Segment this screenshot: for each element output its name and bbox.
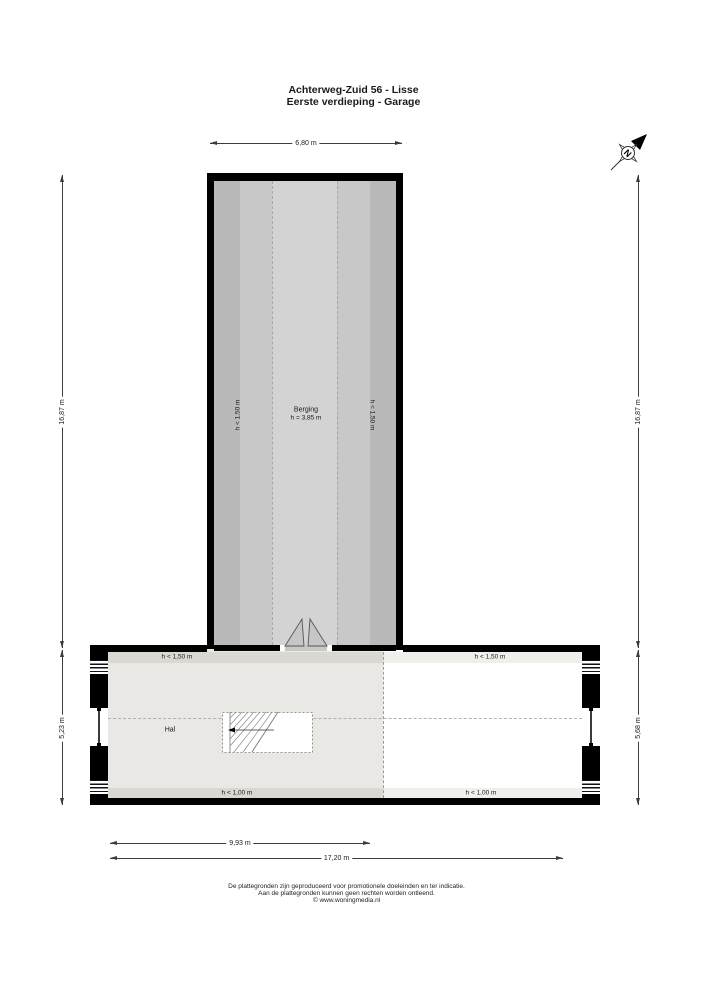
double-door-swing [278, 614, 336, 652]
wall-segment [90, 645, 108, 660]
floor-plan-page: Achterweg-Zuid 56 - Lisse Eerste verdiep… [0, 0, 707, 1000]
wall-segment [582, 645, 600, 660]
right-clearance-top: h < 1,50 m [475, 654, 506, 661]
berging-roofline-dash-left [272, 181, 273, 645]
window [582, 708, 600, 746]
louvre-window [90, 780, 108, 794]
arrow-up-icon [636, 175, 640, 182]
wall-segment [90, 674, 108, 708]
louvre-window [90, 660, 108, 674]
dimension-left-lower: 5,23 m [59, 650, 66, 805]
right-area-floor [383, 652, 582, 798]
arrow-right-icon [395, 141, 402, 145]
dimension-value: 5,23 m [59, 714, 67, 741]
roof-ridge-dash-line [108, 718, 582, 719]
berging-clearance-right: h < 1,50 m [369, 400, 376, 431]
berging-wall-top [207, 173, 403, 181]
arrow-down-icon [636, 798, 640, 805]
window-frame [589, 708, 593, 711]
louvre-window [582, 780, 600, 794]
right-clearance-bottom: h < 1,00 m [466, 790, 497, 797]
dimension-value: 16,87 m [635, 396, 643, 427]
lower-wall-top-right [403, 645, 600, 652]
wall-segment [582, 674, 600, 708]
window-pane [590, 711, 592, 743]
arrow-left-icon [110, 856, 117, 860]
arrow-left-icon [210, 141, 217, 145]
dimension-value: 5,68 m [635, 714, 643, 741]
dimension-right-upper: 16,87 m [635, 175, 642, 648]
arrow-right-icon [556, 856, 563, 860]
page-title: Achterweg-Zuid 56 - Lisse [0, 84, 707, 96]
arrow-down-icon [60, 798, 64, 805]
arrow-down-icon [60, 641, 64, 648]
dimension-value: 9,93 m [226, 840, 253, 848]
wall-segment [90, 746, 108, 780]
dimension-left-upper: 16,87 m [59, 175, 66, 648]
arrow-left-icon [110, 841, 117, 845]
dimension-top-width: 6,80 m [210, 140, 402, 147]
berging-wall-right [396, 173, 403, 650]
left-exterior-wall [90, 645, 108, 805]
berging-clearance-left: h < 1,50 m [235, 400, 242, 431]
disclaimer-line-2: Aan de plattegronden kunnen geen rechten… [0, 890, 693, 897]
berging-ceiling-height: h = 3,85 m [291, 415, 322, 422]
wall-segment [582, 794, 600, 805]
arrow-right-icon [363, 841, 370, 845]
dimension-right-lower: 5,68 m [635, 650, 642, 805]
staircase [222, 712, 313, 753]
hal-room-name: Hal [165, 727, 176, 734]
dimension-value: 6,80 m [292, 140, 319, 148]
window-pane [98, 711, 100, 743]
berging-room-label: Berging h = 3,85 m [291, 407, 322, 422]
hal-low-ceiling-strip-top [108, 652, 383, 663]
page-subtitle: Eerste verdieping - Garage [0, 96, 707, 108]
arrow-up-icon [60, 650, 64, 657]
berging-room-name: Berging [291, 407, 322, 415]
right-exterior-wall [582, 645, 600, 805]
window-frame [97, 708, 101, 711]
lower-wall-bottom [90, 798, 600, 805]
hal-clearance-bottom: h < 1,00 m [222, 790, 253, 797]
arrow-up-icon [60, 175, 64, 182]
room-divider-dash-line [383, 652, 384, 798]
dimension-bottom-total: 17,20 m [110, 855, 563, 862]
hal-clearance-top: h < 1,50 m [162, 654, 193, 661]
copyright-line: © www.woningmedia.nl [0, 897, 693, 904]
wall-segment [582, 746, 600, 780]
louvre-window [582, 660, 600, 674]
compass-north-icon: N [603, 128, 653, 178]
dimension-value: 16,87 m [59, 396, 67, 427]
berging-wall-left [207, 173, 214, 650]
arrow-up-icon [636, 650, 640, 657]
arrow-down-icon [636, 641, 640, 648]
berging-roofline-dash-right [337, 181, 338, 645]
disclaimer-line-1: De plattegronden zijn geproduceerd voor … [0, 883, 693, 890]
window [90, 708, 108, 746]
dimension-bottom-inner: 9,93 m [110, 840, 370, 847]
wall-segment [90, 794, 108, 805]
dimension-value: 17,20 m [321, 855, 352, 863]
